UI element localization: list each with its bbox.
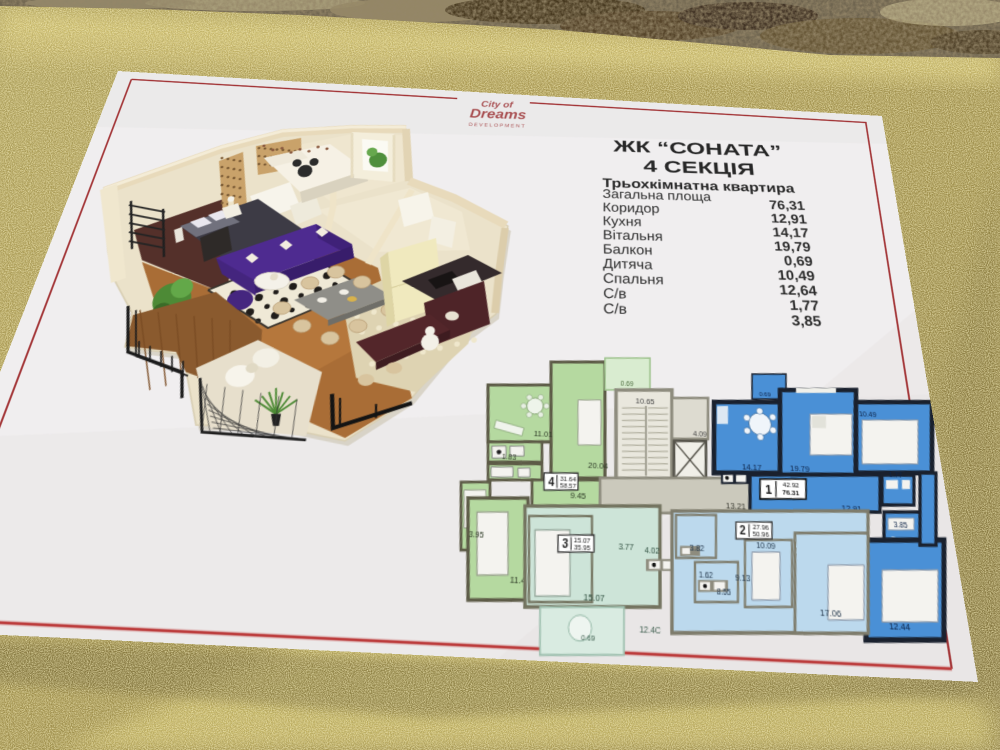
- svg-text:76,31: 76,31: [768, 198, 805, 213]
- svg-text:14.17: 14.17: [742, 464, 762, 473]
- svg-text:Кухня: Кухня: [603, 214, 642, 229]
- svg-text:10.65: 10.65: [636, 398, 656, 407]
- svg-text:3,85: 3,85: [791, 313, 823, 330]
- svg-text:10.09: 10.09: [756, 542, 776, 552]
- svg-text:12,64: 12,64: [778, 282, 817, 298]
- svg-text:11.01: 11.01: [533, 431, 552, 440]
- svg-text:58.57: 58.57: [560, 482, 577, 490]
- svg-text:12,91: 12,91: [770, 211, 808, 226]
- svg-text:Dreams: Dreams: [469, 106, 526, 122]
- svg-text:76.31: 76.31: [782, 489, 800, 498]
- svg-text:1: 1: [765, 483, 773, 497]
- svg-text:3.95: 3.95: [468, 531, 484, 541]
- svg-text:50.96: 50.96: [752, 531, 769, 539]
- svg-text:19.79: 19.79: [790, 465, 810, 474]
- svg-text:42.92: 42.92: [782, 481, 799, 490]
- svg-text:1.62: 1.62: [699, 571, 714, 581]
- svg-text:8.55: 8.55: [717, 588, 732, 598]
- svg-text:10.49: 10.49: [858, 411, 877, 420]
- svg-text:С/в: С/в: [603, 286, 627, 302]
- svg-text:4 СЕКЦІЯ: 4 СЕКЦІЯ: [643, 156, 756, 178]
- svg-text:0.69: 0.69: [621, 381, 634, 389]
- svg-text:12.44: 12.44: [889, 623, 913, 634]
- svg-text:3.77: 3.77: [618, 544, 633, 554]
- svg-text:35.95: 35.95: [574, 544, 591, 552]
- svg-text:0.69: 0.69: [581, 633, 595, 642]
- svg-text:9.45: 9.45: [570, 493, 587, 502]
- svg-text:9.13: 9.13: [735, 574, 751, 584]
- svg-text:3.82: 3.82: [689, 545, 704, 555]
- svg-text:0,69: 0,69: [783, 253, 814, 269]
- svg-text:15.07: 15.07: [583, 594, 605, 605]
- svg-text:20.04: 20.04: [588, 462, 609, 471]
- svg-text:4.09: 4.09: [693, 430, 707, 439]
- svg-text:С/в: С/в: [603, 301, 627, 318]
- svg-text:17.06: 17.06: [820, 610, 843, 621]
- svg-text:3.85: 3.85: [893, 522, 908, 531]
- svg-text:4.02: 4.02: [645, 547, 660, 557]
- svg-text:1.83: 1.83: [502, 453, 517, 462]
- svg-text:1.77: 1.77: [889, 472, 904, 481]
- svg-text:14,17: 14,17: [772, 225, 810, 240]
- svg-text:0.69: 0.69: [759, 391, 772, 398]
- svg-text:10,49: 10,49: [777, 268, 816, 284]
- svg-text:1,77: 1,77: [789, 297, 821, 314]
- svg-text:19,79: 19,79: [773, 239, 811, 255]
- svg-text:12.4С: 12.4С: [639, 626, 661, 637]
